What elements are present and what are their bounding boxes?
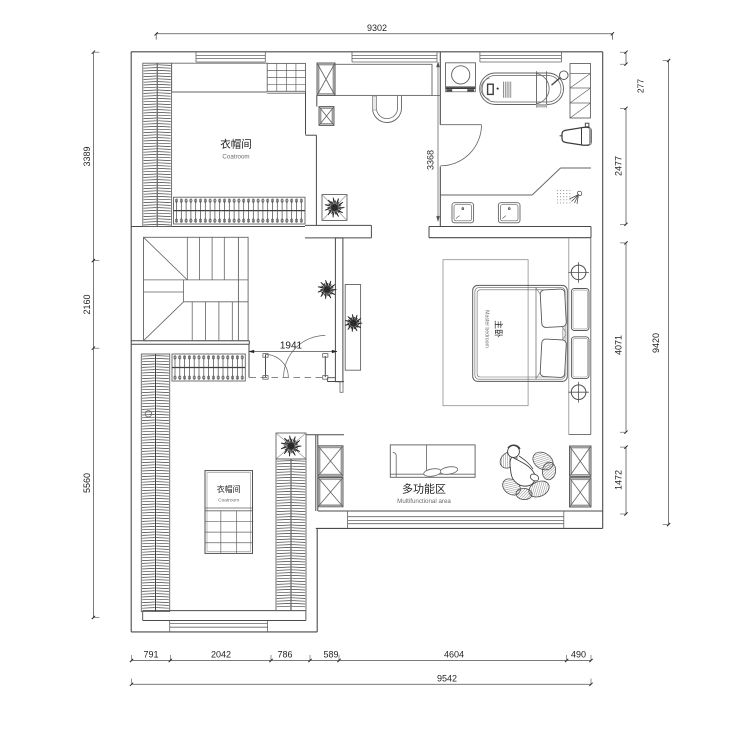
svg-text:Master bedroom: Master bedroom xyxy=(484,310,490,348)
svg-text:主卧: 主卧 xyxy=(494,320,505,338)
svg-text:3368: 3368 xyxy=(426,150,436,170)
svg-text:3389: 3389 xyxy=(82,146,92,166)
svg-text:1472: 1472 xyxy=(614,470,624,490)
svg-text:9542: 9542 xyxy=(437,674,457,684)
svg-text:2477: 2477 xyxy=(614,156,624,176)
svg-text:589: 589 xyxy=(323,650,338,660)
svg-text:490: 490 xyxy=(571,650,586,660)
svg-text:4604: 4604 xyxy=(444,650,464,660)
svg-text:1941: 1941 xyxy=(280,341,303,352)
svg-text:衣帽间: 衣帽间 xyxy=(217,484,241,494)
svg-text:277: 277 xyxy=(636,79,646,93)
svg-text:9420: 9420 xyxy=(651,333,661,353)
svg-text:2042: 2042 xyxy=(211,650,231,660)
svg-text:4071: 4071 xyxy=(614,335,624,355)
svg-text:5560: 5560 xyxy=(82,473,92,493)
svg-text:衣帽间: 衣帽间 xyxy=(220,138,252,151)
svg-text:多功能区: 多功能区 xyxy=(402,482,446,496)
svg-text:Multifunctional area: Multifunctional area xyxy=(397,498,451,505)
svg-text:791: 791 xyxy=(143,650,158,660)
svg-text:Coatroom: Coatroom xyxy=(222,154,249,161)
svg-text:9302: 9302 xyxy=(367,23,387,33)
svg-text:Coatroom: Coatroom xyxy=(218,498,239,504)
svg-text:786: 786 xyxy=(277,650,292,660)
svg-text:2160: 2160 xyxy=(82,294,92,314)
